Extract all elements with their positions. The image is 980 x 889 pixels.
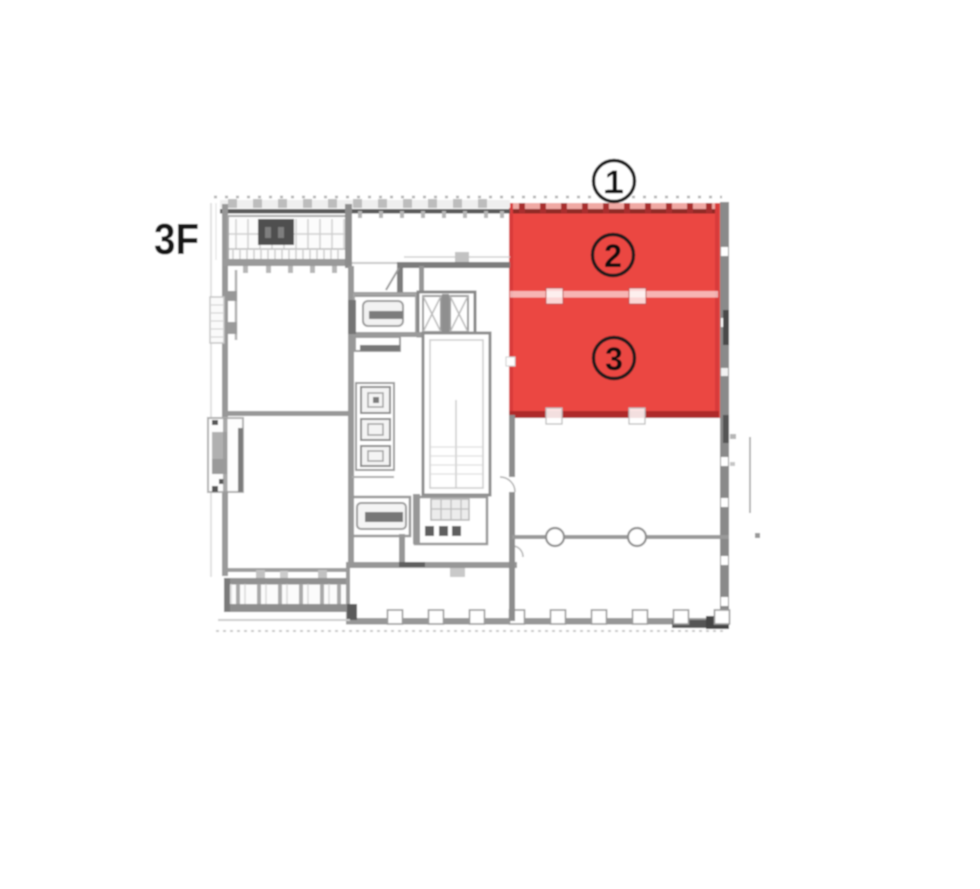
- svg-text:2: 2: [604, 238, 622, 274]
- svg-text:1: 1: [605, 164, 623, 200]
- svg-text:3F: 3F: [154, 215, 199, 264]
- svg-text:3: 3: [605, 341, 623, 377]
